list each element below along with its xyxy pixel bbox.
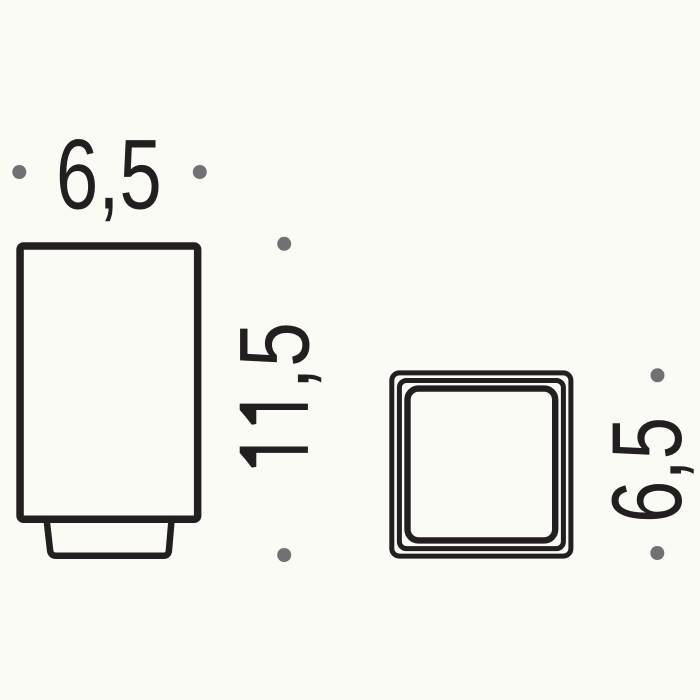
svg-text:6,5: 6,5 bbox=[56, 119, 162, 230]
svg-text:6,5: 6,5 bbox=[591, 417, 700, 523]
